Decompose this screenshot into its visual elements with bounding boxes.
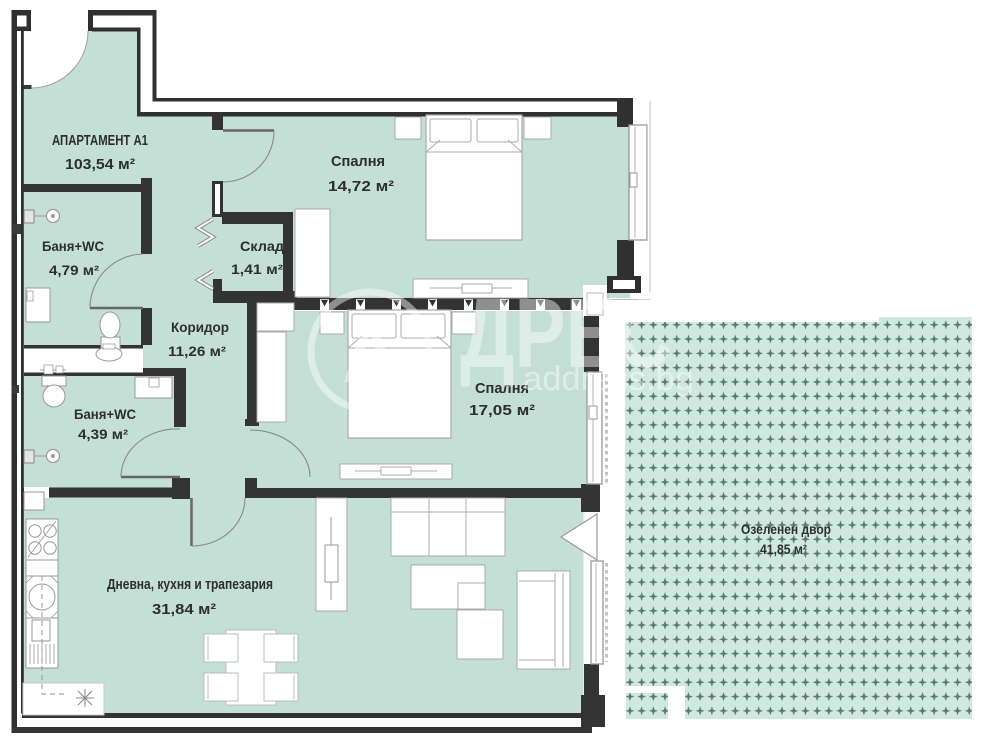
- svg-text:103,54 м²: 103,54 м²: [65, 156, 135, 173]
- svg-text:14,72 м²: 14,72 м²: [328, 178, 394, 195]
- svg-text:Баня+WC: Баня+WC: [42, 238, 104, 254]
- svg-text:address.bg: address.bg: [523, 360, 694, 398]
- svg-text:АПАРТАМЕНТ А1: АПАРТАМЕНТ А1: [52, 132, 148, 149]
- svg-text:4,39 м²: 4,39 м²: [78, 426, 128, 442]
- svg-text:11,26 м²: 11,26 м²: [168, 343, 226, 359]
- svg-text:Склад: Склад: [240, 238, 284, 254]
- svg-text:41,85 м²: 41,85 м²: [760, 541, 807, 557]
- svg-text:31,84 м²: 31,84 м²: [152, 601, 216, 618]
- svg-text:Баня+WC: Баня+WC: [74, 406, 136, 422]
- svg-text:Коридор: Коридор: [171, 319, 229, 335]
- svg-text:Озеленен двор: Озеленен двор: [741, 521, 831, 537]
- svg-text:4,79 м²: 4,79 м²: [49, 262, 99, 278]
- svg-text:А: А: [342, 305, 398, 401]
- svg-text:Дневна, кухня и трапезария: Дневна, кухня и трапезария: [107, 576, 273, 593]
- svg-text:17,05 м²: 17,05 м²: [469, 402, 535, 419]
- svg-text:1,41 м²: 1,41 м²: [231, 261, 283, 277]
- svg-text:Спалня: Спалня: [331, 153, 385, 170]
